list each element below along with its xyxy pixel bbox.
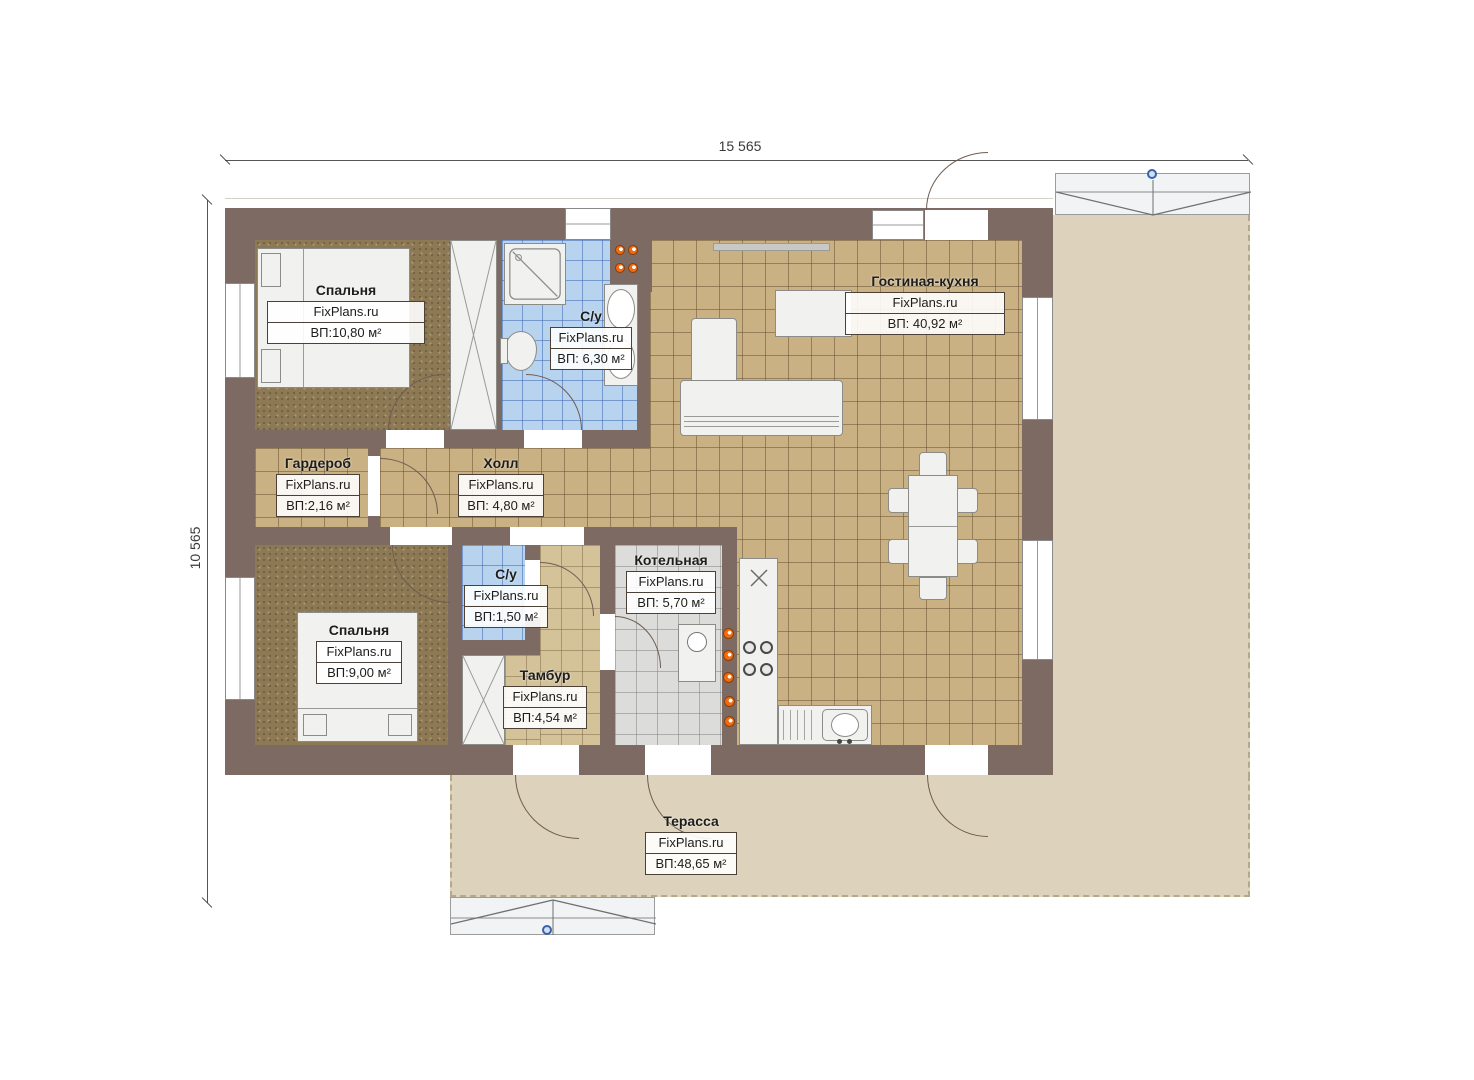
room-brand: FixPlans.ru [504,687,586,707]
stove-burner-icon [743,641,756,654]
room-area: ВП: 6,30 м² [551,348,631,369]
door-opening-bedroom1 [386,430,444,448]
chair [888,539,909,564]
dimension-width-line [225,160,1248,161]
sofa-seat-lines [684,416,839,429]
room-label-vestibule: Тамбур FixPlans.ru ВП:4,54 м² [503,667,587,729]
sink-bowl-icon [831,713,859,737]
wardrobe-x-icon [451,241,496,429]
shower-icon [505,244,565,304]
door-opening-bedroom2 [390,527,452,545]
room-label-boiler: Котельная FixPlans.ru ВП: 5,70 м² [626,552,716,614]
bedroom2-wardrobe [462,655,505,745]
room-info-box: FixPlans.ru ВП:9,00 м² [316,641,402,684]
faucet-icon [837,739,842,744]
room-area: ВП:2,16 м² [277,495,359,516]
room-info-box: FixPlans.ru ВП: 40,92 м² [845,292,1005,335]
room-area: ВП: 5,70 м² [627,592,715,613]
burner-icon [723,628,734,639]
room-info-box: FixPlans.ru ВП: 5,70 м² [626,571,716,614]
room-area: ВП:4,54 м² [504,707,586,728]
steps-lines-icon [451,898,656,936]
bedroom1-wardrobe [450,240,497,430]
room-name: Гостиная-кухня [845,273,1005,290]
bed-blanket-line [298,708,417,709]
room-info-box: FixPlans.ru ВП:10,80 м² [267,301,425,344]
passage-hall-vestibule [510,527,584,545]
entry-steps-bottom [450,897,655,935]
dimension-height-line [207,200,208,903]
stove-burner-icon [760,641,773,654]
dining-table-line [909,526,957,527]
room-label-hall: Холл FixPlans.ru ВП: 4,80 м² [458,455,544,517]
burner-icon [628,263,638,273]
room-name: Котельная [626,552,716,569]
chair [957,488,978,513]
pillow [303,714,327,736]
chair [919,577,947,600]
wardrobe-x-icon [463,656,504,744]
dimension-width-label: 15 565 [695,138,785,154]
window [565,208,611,240]
chair [888,488,909,513]
window [1022,540,1053,660]
room-area: ВП:48,65 м² [646,853,736,874]
room-brand: FixPlans.ru [277,475,359,495]
stove-burner-icon [743,663,756,676]
door-opening-living-terrace [925,745,988,775]
window [225,283,255,378]
stove-burner-icon [760,663,773,676]
room-brand: FixPlans.ru [551,328,631,348]
room-label-bathroom2: С/у FixPlans.ru ВП:1,50 м² [464,566,548,628]
floor-plan: 15 565 10 565 [0,0,1474,1080]
room-area: ВП: 40,92 м² [846,313,1004,334]
door-opening-boiler [600,614,615,670]
burner-icon [628,245,638,255]
room-info-box: FixPlans.ru ВП: 4,80 м² [458,474,544,517]
burner-icon [724,716,735,727]
room-label-terrace: Терасса FixPlans.ru ВП:48,65 м² [645,813,737,875]
burner-icon [615,263,625,273]
shower [504,243,566,305]
room-label-bedroom2: Спальня FixPlans.ru ВП:9,00 м² [316,622,402,684]
entry-marker-bottom [542,925,552,935]
room-area: ВП: 4,80 м² [459,495,543,516]
room-info-box: FixPlans.ru ВП:2,16 м² [276,474,360,517]
entry-sidelight-window [872,210,924,240]
room-brand: FixPlans.ru [317,642,401,662]
room-name: Гардероб [276,455,360,472]
toilet-tank [500,338,508,364]
burner-icon [724,696,735,707]
room-name: Холл [458,455,544,472]
room-name: Спальня [316,622,402,639]
burner-icon [723,650,734,661]
room-name: С/у [550,308,632,325]
counter-x-icon [747,566,771,590]
dimension-height-label: 10 565 [187,503,203,593]
room-brand: FixPlans.ru [268,302,424,322]
room-label-wardrobe: Гардероб FixPlans.ru ВП:2,16 м² [276,455,360,517]
burner-icon [723,672,734,683]
room-name: С/у [464,566,548,583]
room-brand: FixPlans.ru [846,293,1004,313]
room-brand: FixPlans.ru [465,586,547,606]
tv-console [713,243,830,251]
room-brand: FixPlans.ru [627,572,715,592]
room-info-box: FixPlans.ru ВП:48,65 м² [645,832,737,875]
boiler-door-icon [687,632,707,652]
room-area: ВП:1,50 м² [465,606,547,627]
room-brand: FixPlans.ru [646,833,736,853]
pillow [261,349,281,383]
room-label-bathroom1: С/у FixPlans.ru ВП: 6,30 м² [550,308,632,370]
door-opening-main-entry [925,210,988,240]
sofa-chaise [691,318,737,384]
faucet-icon [847,739,852,744]
burner-icon [615,245,625,255]
room-name: Спальня [267,282,425,299]
window [225,577,255,700]
room-label-living: Гостиная-кухня FixPlans.ru ВП: 40,92 м² [845,273,1005,335]
door-opening-bathroom1 [524,430,582,448]
room-info-box: FixPlans.ru ВП:1,50 м² [464,585,548,628]
pillow [388,714,412,736]
room-info-box: FixPlans.ru ВП: 6,30 м² [550,327,632,370]
room-name: Терасса [645,813,737,830]
window [1022,297,1053,420]
coffee-table [775,290,852,337]
steps-lines-icon [1056,174,1251,216]
chair [957,539,978,564]
chair [919,452,947,476]
room-label-bedroom1: Спальня FixPlans.ru ВП:10,80 м² [267,282,425,344]
room-info-box: FixPlans.ru ВП:4,54 м² [503,686,587,729]
entry-marker-top [1147,169,1157,179]
door-opening-boiler-exterior [645,745,711,775]
entry-steps-top [1055,173,1250,215]
door-opening-vestibule-exterior [513,745,579,775]
room-area: ВП:9,00 м² [317,662,401,683]
room-area: ВП:10,80 м² [268,322,424,343]
door-opening-wardrobe [368,456,380,516]
room-name: Тамбур [503,667,587,684]
drainboard [783,710,817,740]
room-brand: FixPlans.ru [459,475,543,495]
